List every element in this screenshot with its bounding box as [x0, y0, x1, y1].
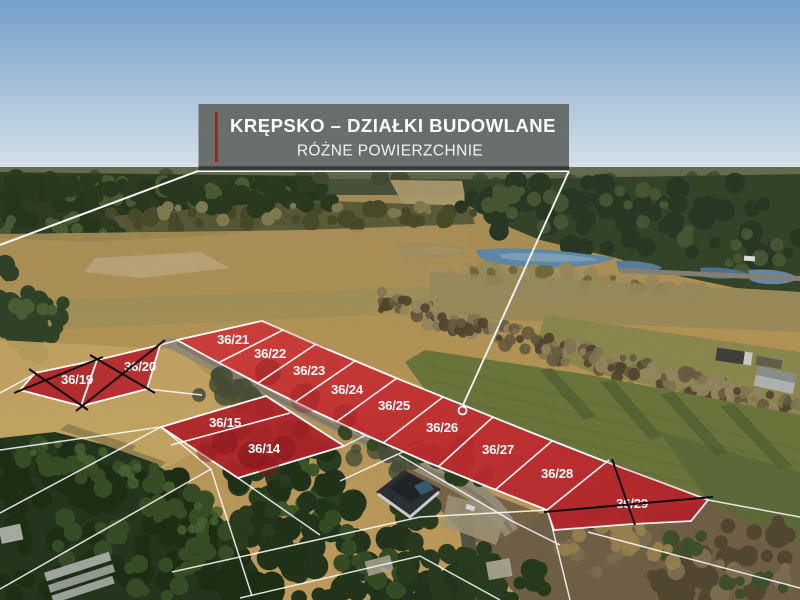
svg-text:36/24: 36/24	[331, 382, 364, 397]
svg-text:36/20: 36/20	[124, 359, 156, 374]
svg-text:KRĘPSKO – DZIAŁKI BUDOWLANE: KRĘPSKO – DZIAŁKI BUDOWLANE	[230, 115, 556, 136]
svg-text:36/22: 36/22	[254, 346, 286, 361]
svg-text:36/21: 36/21	[217, 332, 249, 347]
svg-text:36/19: 36/19	[61, 372, 93, 387]
svg-text:36/15: 36/15	[209, 415, 241, 430]
svg-text:36/27: 36/27	[482, 442, 514, 457]
svg-text:36/14: 36/14	[248, 441, 281, 456]
svg-text:36/25: 36/25	[378, 398, 410, 413]
svg-text:RÓŻNE POWIERZCHNIE: RÓŻNE POWIERZCHNIE	[297, 142, 483, 160]
svg-text:36/23: 36/23	[293, 363, 325, 378]
svg-text:36/28: 36/28	[541, 466, 573, 481]
svg-text:36/26: 36/26	[426, 420, 458, 435]
